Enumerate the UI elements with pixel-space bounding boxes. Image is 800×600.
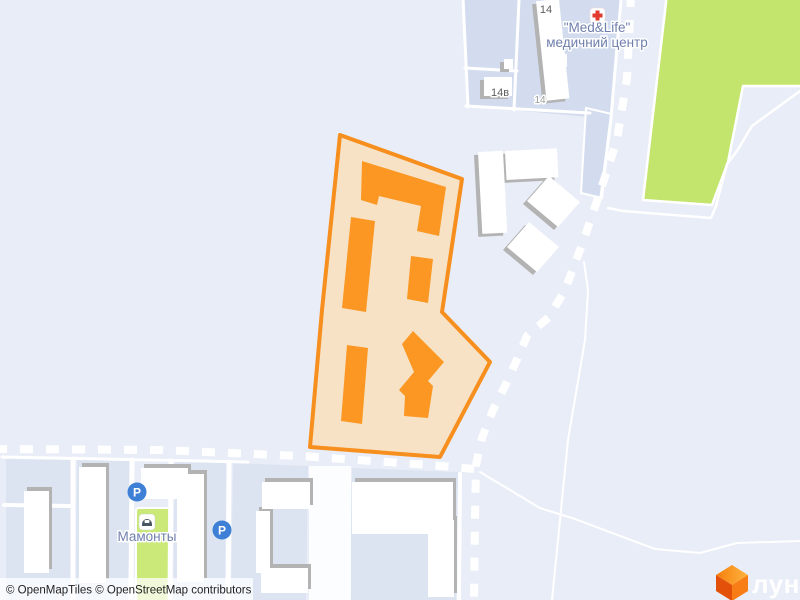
- attribution[interactable]: © OpenMapTiles © OpenStreetMap contribut…: [0, 578, 253, 600]
- housenumber-14-building: 14: [534, 95, 546, 106]
- parking-icon: P: [128, 483, 147, 502]
- storefront-icon: [139, 514, 155, 530]
- parking-letter: P: [218, 524, 226, 538]
- attribution-text[interactable]: © OpenMapTiles © OpenStreetMap contribut…: [6, 585, 252, 597]
- parking-letter: P: [133, 486, 141, 500]
- poi-medlife-name: "Med&Life": [564, 20, 631, 35]
- road-gap: [309, 466, 351, 600]
- map-canvas[interactable]: P P 14 14в 14 "Med&Life" медичний центр …: [0, 0, 800, 600]
- poi-medlife-type: медичний центр: [546, 35, 647, 50]
- lun-logo-text: лун: [752, 569, 800, 599]
- housenumber-14v: 14в: [491, 87, 509, 99]
- housenumber-14: 14: [540, 4, 552, 16]
- lun-logo[interactable]: лун: [716, 565, 800, 600]
- parking-icon: P: [213, 521, 232, 540]
- poi-mamonty-name: Мамонты: [117, 529, 176, 544]
